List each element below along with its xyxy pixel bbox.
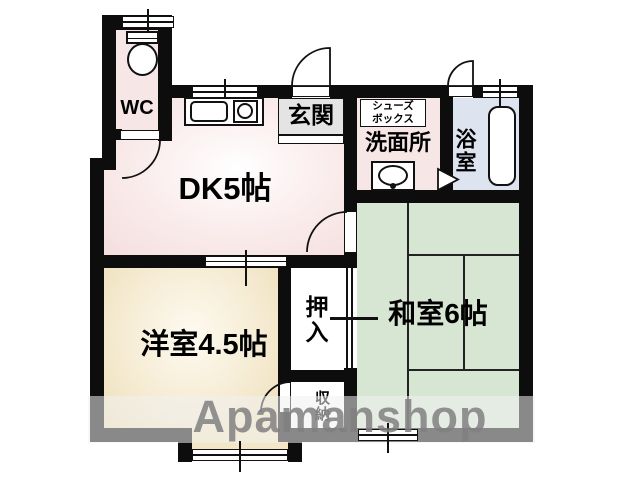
wc-label: WC (116, 97, 158, 119)
stove-burner-icon (237, 103, 253, 119)
japanese-room-label: 和室6帖 (357, 299, 519, 330)
bathroom-window-tick (499, 79, 501, 106)
dk-western-sliding-door-tick (245, 250, 247, 286)
watermark-text: Apamanshop (150, 391, 530, 443)
entrance-door-arc (292, 48, 330, 86)
dk-japanese-room-door-arc (307, 212, 347, 252)
western-room-label: 洋室4.5帖 (104, 330, 304, 362)
shoes-box-label-line1: シューズ (372, 100, 413, 113)
dk-label: DK5帖 (130, 172, 320, 206)
bathroom-label: 浴室 (453, 110, 479, 192)
closet-label: 押入 (302, 282, 332, 358)
bathtub-icon (488, 106, 516, 186)
kitchen-sink-icon (190, 101, 228, 122)
bay-window-tick (239, 441, 241, 472)
bathroom-exterior-door-arc (448, 61, 473, 86)
genkan-label: 玄関 (278, 103, 344, 128)
floorplan: シューズ ボックス WC DK5帖 玄関 洗面所 浴室 和室6帖 洋室4.5帖 … (0, 0, 640, 480)
shoes-box: シューズ ボックス (360, 99, 426, 127)
shoes-box-label-line2: ボックス (372, 113, 414, 126)
washroom-label: 洗面所 (352, 131, 444, 155)
toilet-bowl-icon (127, 43, 158, 76)
washbasin-drain-icon (390, 183, 396, 189)
